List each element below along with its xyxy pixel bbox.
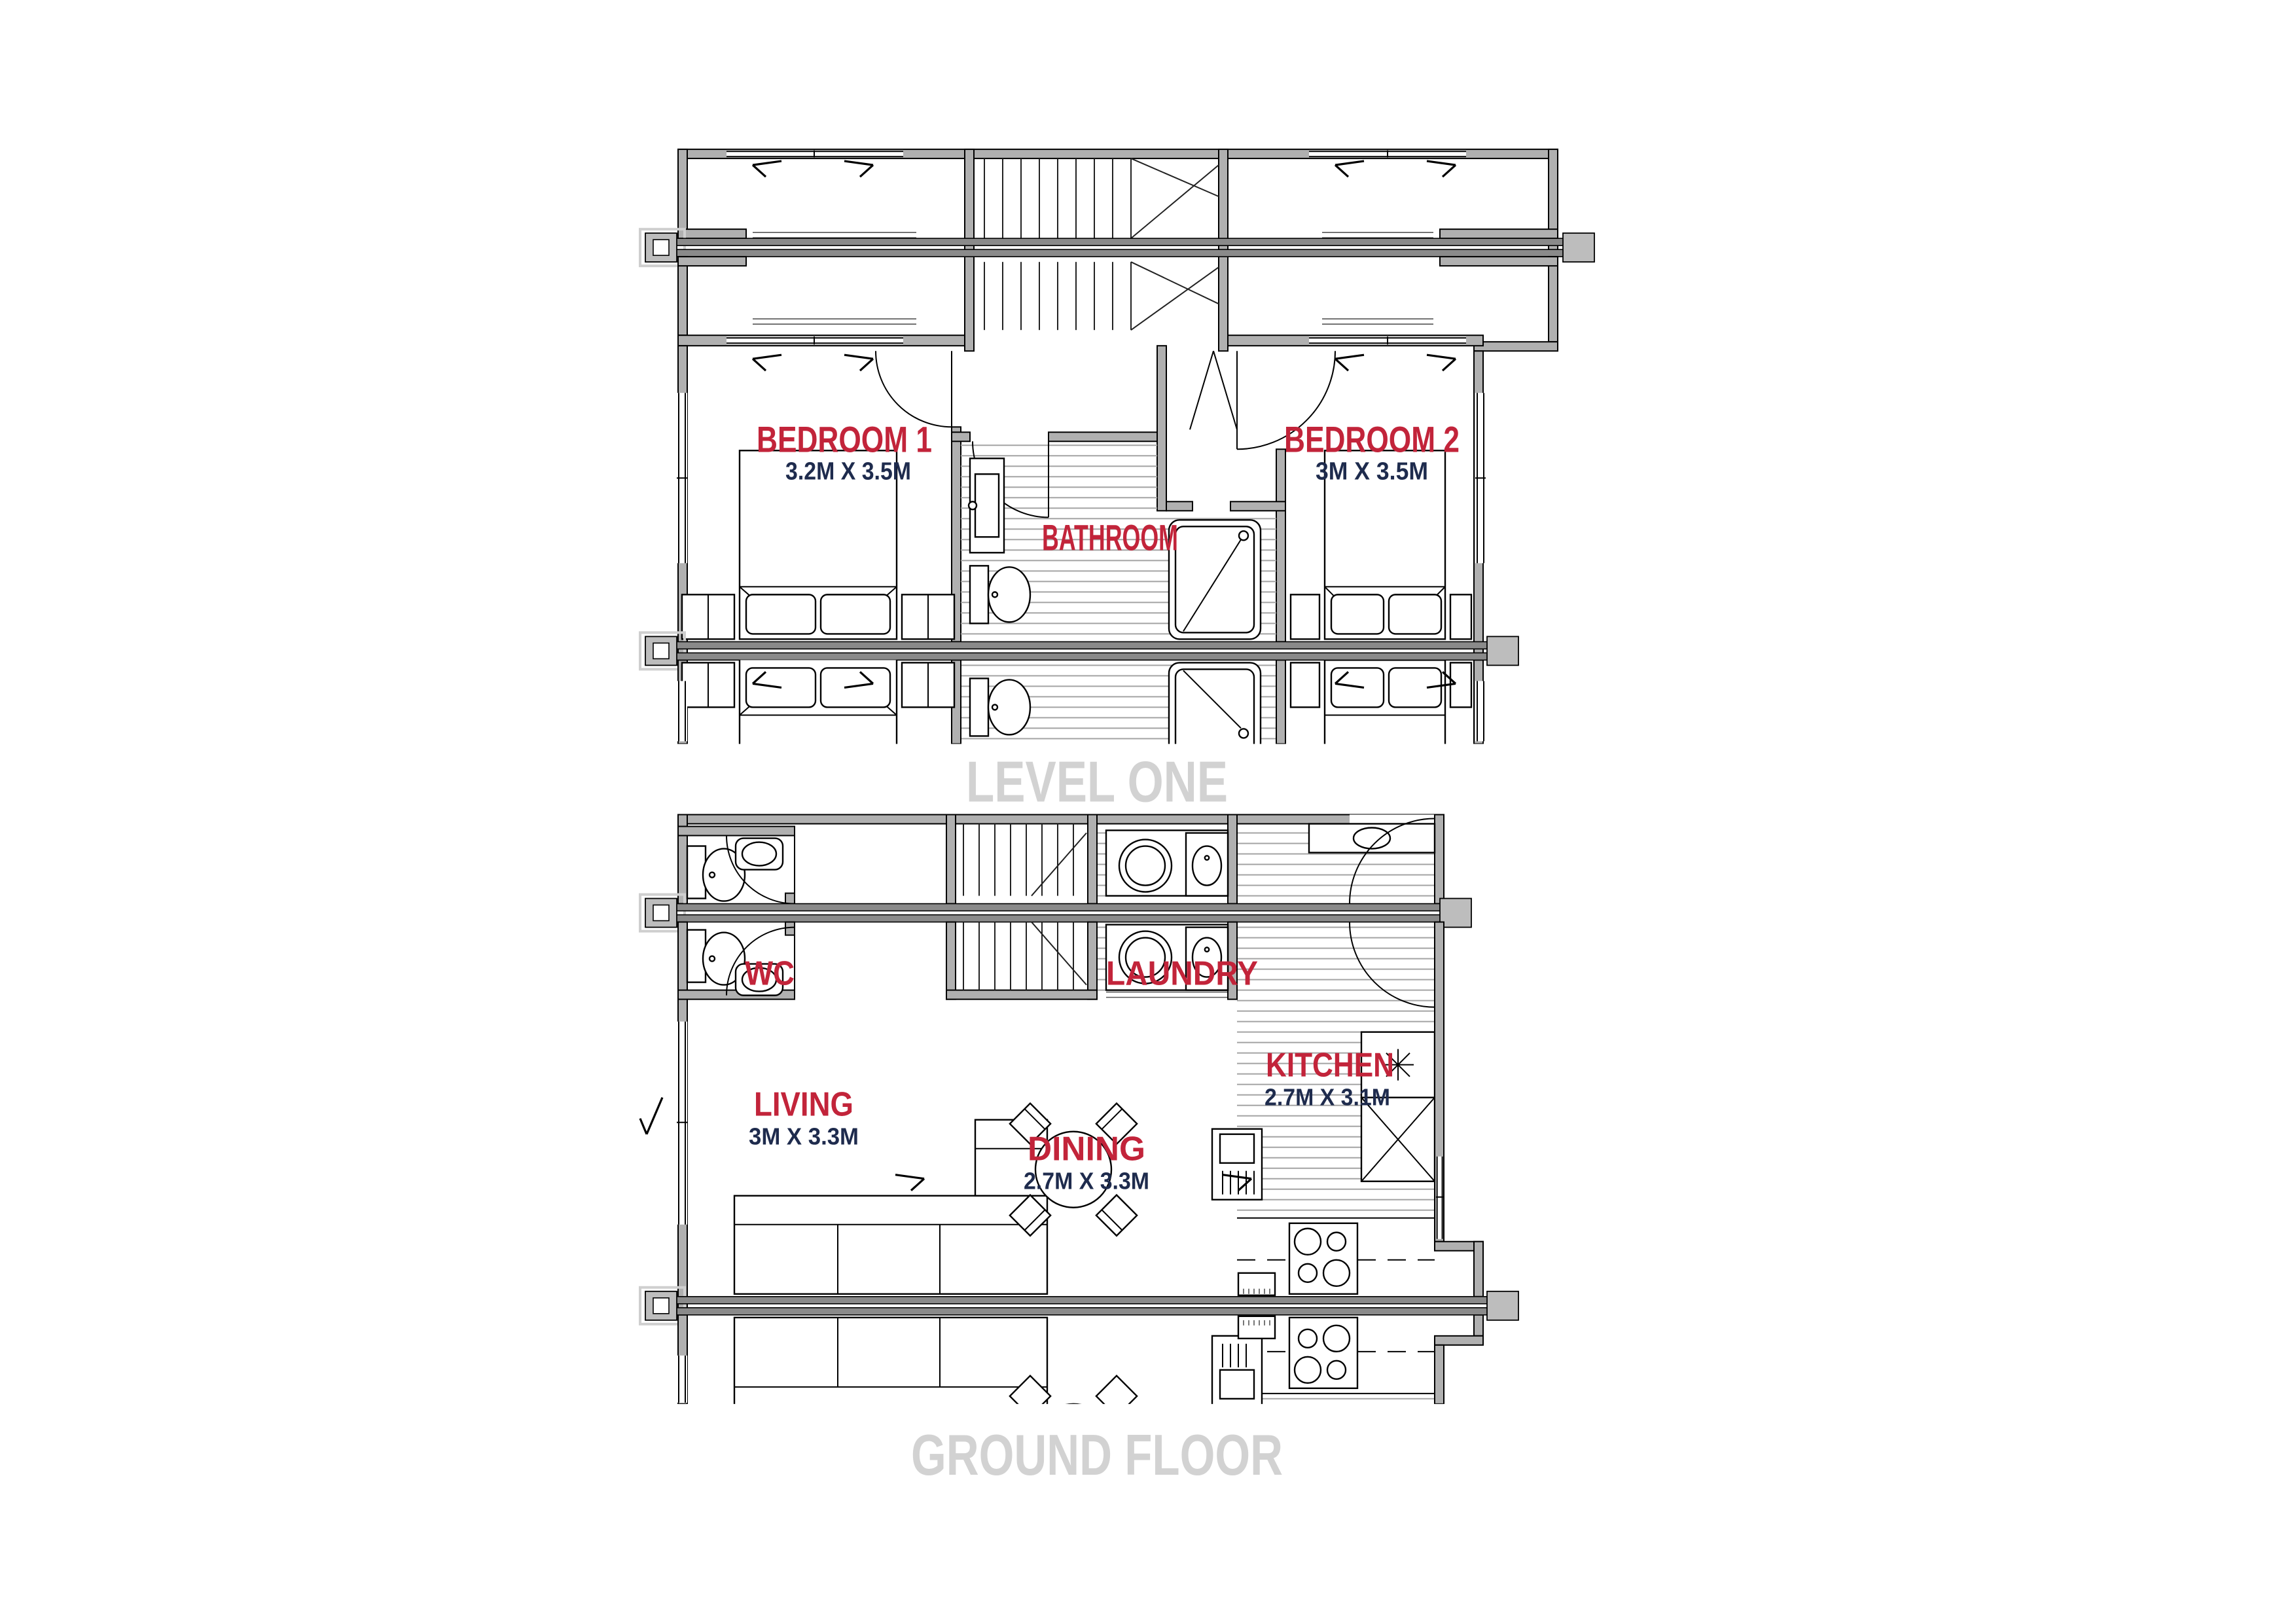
stair-flight-lower — [984, 262, 1219, 330]
room-dims-kitchen: 2.7M X 3.1M — [1265, 1084, 1390, 1111]
room-label-wc: WC — [745, 955, 795, 993]
fridge — [1212, 1129, 1262, 1200]
level-one-plan: BEDROOM 1 3.2M X 3.5M BATHROOM BEDROOM 2… — [640, 149, 1594, 814]
shower — [1169, 520, 1261, 639]
stair-flight-upper — [984, 158, 1219, 238]
room-label-living: LIVING — [754, 1086, 853, 1124]
wc-mirror — [687, 836, 795, 904]
room-label-bathroom: BATHROOM — [1042, 516, 1178, 558]
room-dims-bedroom1: 3.2M X 3.5M — [785, 458, 911, 485]
room-label-dining: DINING — [1028, 1130, 1145, 1168]
dishwasher-mirror — [1238, 1316, 1275, 1339]
caption-ground-floor: GROUND FLOOR — [911, 1422, 1283, 1487]
stairs-mirror — [946, 815, 1097, 904]
floorplan-drawing: BEDROOM 1 3.2M X 3.5M BATHROOM BEDROOM 2… — [0, 0, 2296, 1624]
dishwasher — [1238, 1273, 1275, 1295]
room-dims-dining: 2.7M X 3.3M — [1024, 1168, 1149, 1195]
room-label-bedroom1: BEDROOM 1 — [757, 418, 932, 460]
hob-mirror — [1289, 1318, 1357, 1388]
room-dims-bedroom2: 3M X 3.5M — [1316, 458, 1428, 485]
exterior-tick — [640, 1098, 662, 1134]
toilet — [970, 566, 1030, 623]
kitchen-bench — [1237, 1218, 1435, 1295]
room-label-laundry: LAUNDRY — [1106, 955, 1258, 993]
ground-floor-plan: WC LAUNDRY KITCHEN 2.7M X 3.1M LIVING 3M… — [640, 815, 1518, 1487]
gf-right-wall — [1435, 922, 1483, 1297]
caption-level-one: LEVEL ONE — [966, 749, 1228, 814]
floorplan-page: BEDROOM 1 3.2M X 3.5M BATHROOM BEDROOM 2… — [0, 0, 2296, 1624]
vanity-sink — [969, 458, 1004, 552]
room-label-bedroom2: BEDROOM 2 — [1284, 418, 1460, 460]
hob — [1289, 1223, 1357, 1294]
neighbour-unit-top-gf — [678, 815, 1444, 904]
swing-mark-1 — [895, 1175, 924, 1191]
room-label-kitchen: KITCHEN — [1266, 1047, 1394, 1085]
room-dims-living: 3M X 3.3M — [749, 1123, 859, 1150]
fridge-mirror — [1212, 1336, 1262, 1407]
unit-north-wall — [678, 335, 1483, 370]
